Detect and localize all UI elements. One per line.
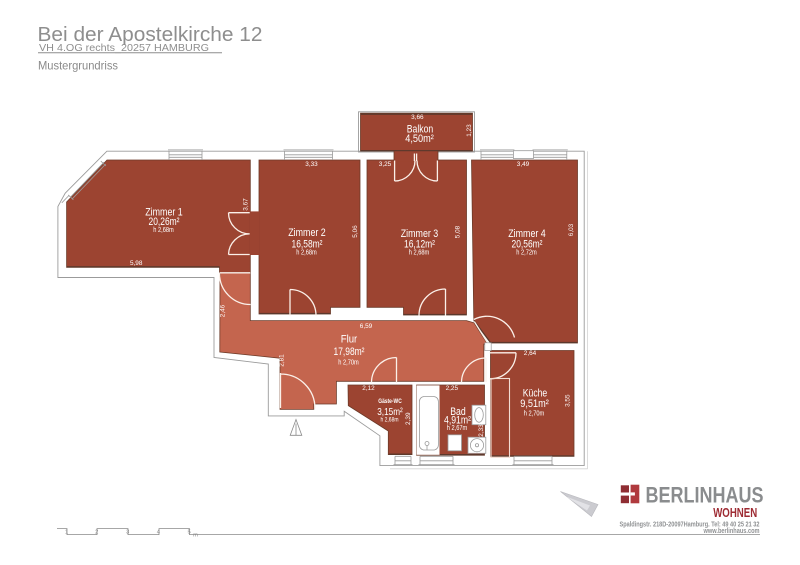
svg-text:9,51m²: 9,51m² (520, 398, 549, 410)
svg-text:h 2,70m: h 2,70m (524, 411, 545, 418)
svg-text:3,33: 3,33 (305, 161, 318, 168)
svg-text:1: 1 (65, 530, 68, 536)
svg-text:16,58m²: 16,58m² (292, 238, 323, 250)
svg-text:Mustergrundriss: Mustergrundriss (38, 59, 118, 73)
svg-text:m: m (193, 533, 198, 539)
svg-text:3,55: 3,55 (565, 394, 572, 407)
svg-text:6,59: 6,59 (360, 323, 373, 330)
svg-text:5: 5 (187, 530, 190, 536)
svg-text:4,50m²: 4,50m² (405, 133, 434, 145)
svg-text:3,67: 3,67 (242, 198, 249, 211)
svg-text:2,33: 2,33 (478, 424, 485, 437)
svg-text:WOHNEN: WOHNEN (713, 505, 757, 520)
svg-text:www.berlinhaus.com: www.berlinhaus.com (703, 526, 760, 535)
svg-text:Flur: Flur (341, 334, 358, 346)
svg-text:h 2,68m: h 2,68m (153, 227, 174, 234)
svg-text:2,39: 2,39 (405, 412, 412, 425)
svg-text:Zimmer 2: Zimmer 2 (288, 227, 326, 239)
svg-text:2,25: 2,25 (446, 385, 459, 392)
svg-text:h 2,68m: h 2,68m (381, 417, 399, 424)
svg-text:3,25: 3,25 (379, 161, 392, 168)
svg-text:5,06: 5,06 (352, 225, 359, 238)
svg-text:2: 2 (95, 530, 98, 536)
svg-text:BERLINHAUS: BERLINHAUS (646, 482, 764, 507)
svg-text:5,08: 5,08 (455, 225, 462, 238)
svg-text:3,49: 3,49 (517, 161, 530, 168)
svg-text:17,98m²: 17,98m² (334, 346, 365, 358)
svg-text:3,66: 3,66 (411, 114, 424, 121)
svg-text:2,64: 2,64 (524, 350, 537, 357)
svg-text:20,56m²: 20,56m² (512, 238, 543, 250)
svg-text:h 2,70m: h 2,70m (338, 360, 359, 367)
svg-text:2,81: 2,81 (279, 354, 286, 367)
svg-text:5,98: 5,98 (130, 260, 143, 267)
svg-text:VH 4.OG rechts_20257 HAMBURG: VH 4.OG rechts_20257 HAMBURG (39, 42, 209, 54)
svg-text:16,12m²: 16,12m² (404, 238, 435, 250)
svg-text:h 2,68m: h 2,68m (409, 250, 430, 257)
svg-text:2,12: 2,12 (362, 385, 375, 392)
svg-text:Gäste-WC: Gäste-WC (378, 398, 402, 405)
svg-text:3: 3 (126, 530, 129, 536)
svg-text:6,03: 6,03 (568, 223, 575, 236)
svg-text:h 2,68m: h 2,68m (296, 250, 317, 257)
svg-text:2,46: 2,46 (220, 304, 227, 317)
svg-text:h 2,72m: h 2,72m (516, 250, 537, 257)
svg-text:h 2,67m: h 2,67m (447, 425, 468, 432)
svg-text:1,23: 1,23 (466, 124, 473, 137)
